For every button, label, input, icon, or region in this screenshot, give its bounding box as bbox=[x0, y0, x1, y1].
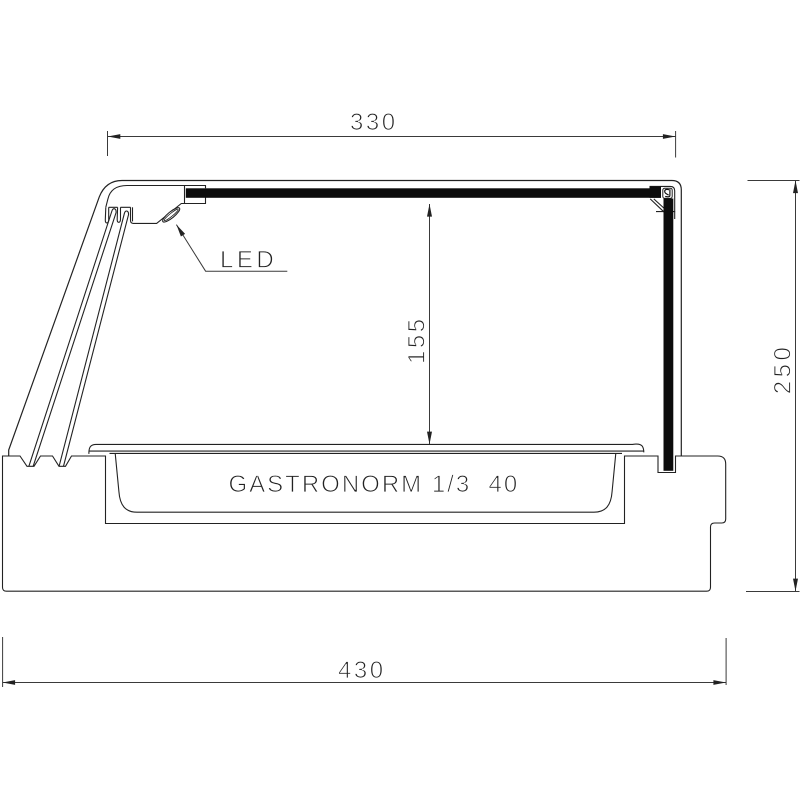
svg-text:GASTRONORM 1/3 40: GASTRONORM 1/3 40 bbox=[229, 471, 520, 498]
svg-text:155: 155 bbox=[404, 316, 431, 364]
svg-text:250: 250 bbox=[770, 344, 797, 395]
svg-text:430: 430 bbox=[338, 657, 386, 684]
svg-text:LED: LED bbox=[220, 247, 277, 274]
svg-text:330: 330 bbox=[350, 109, 398, 136]
